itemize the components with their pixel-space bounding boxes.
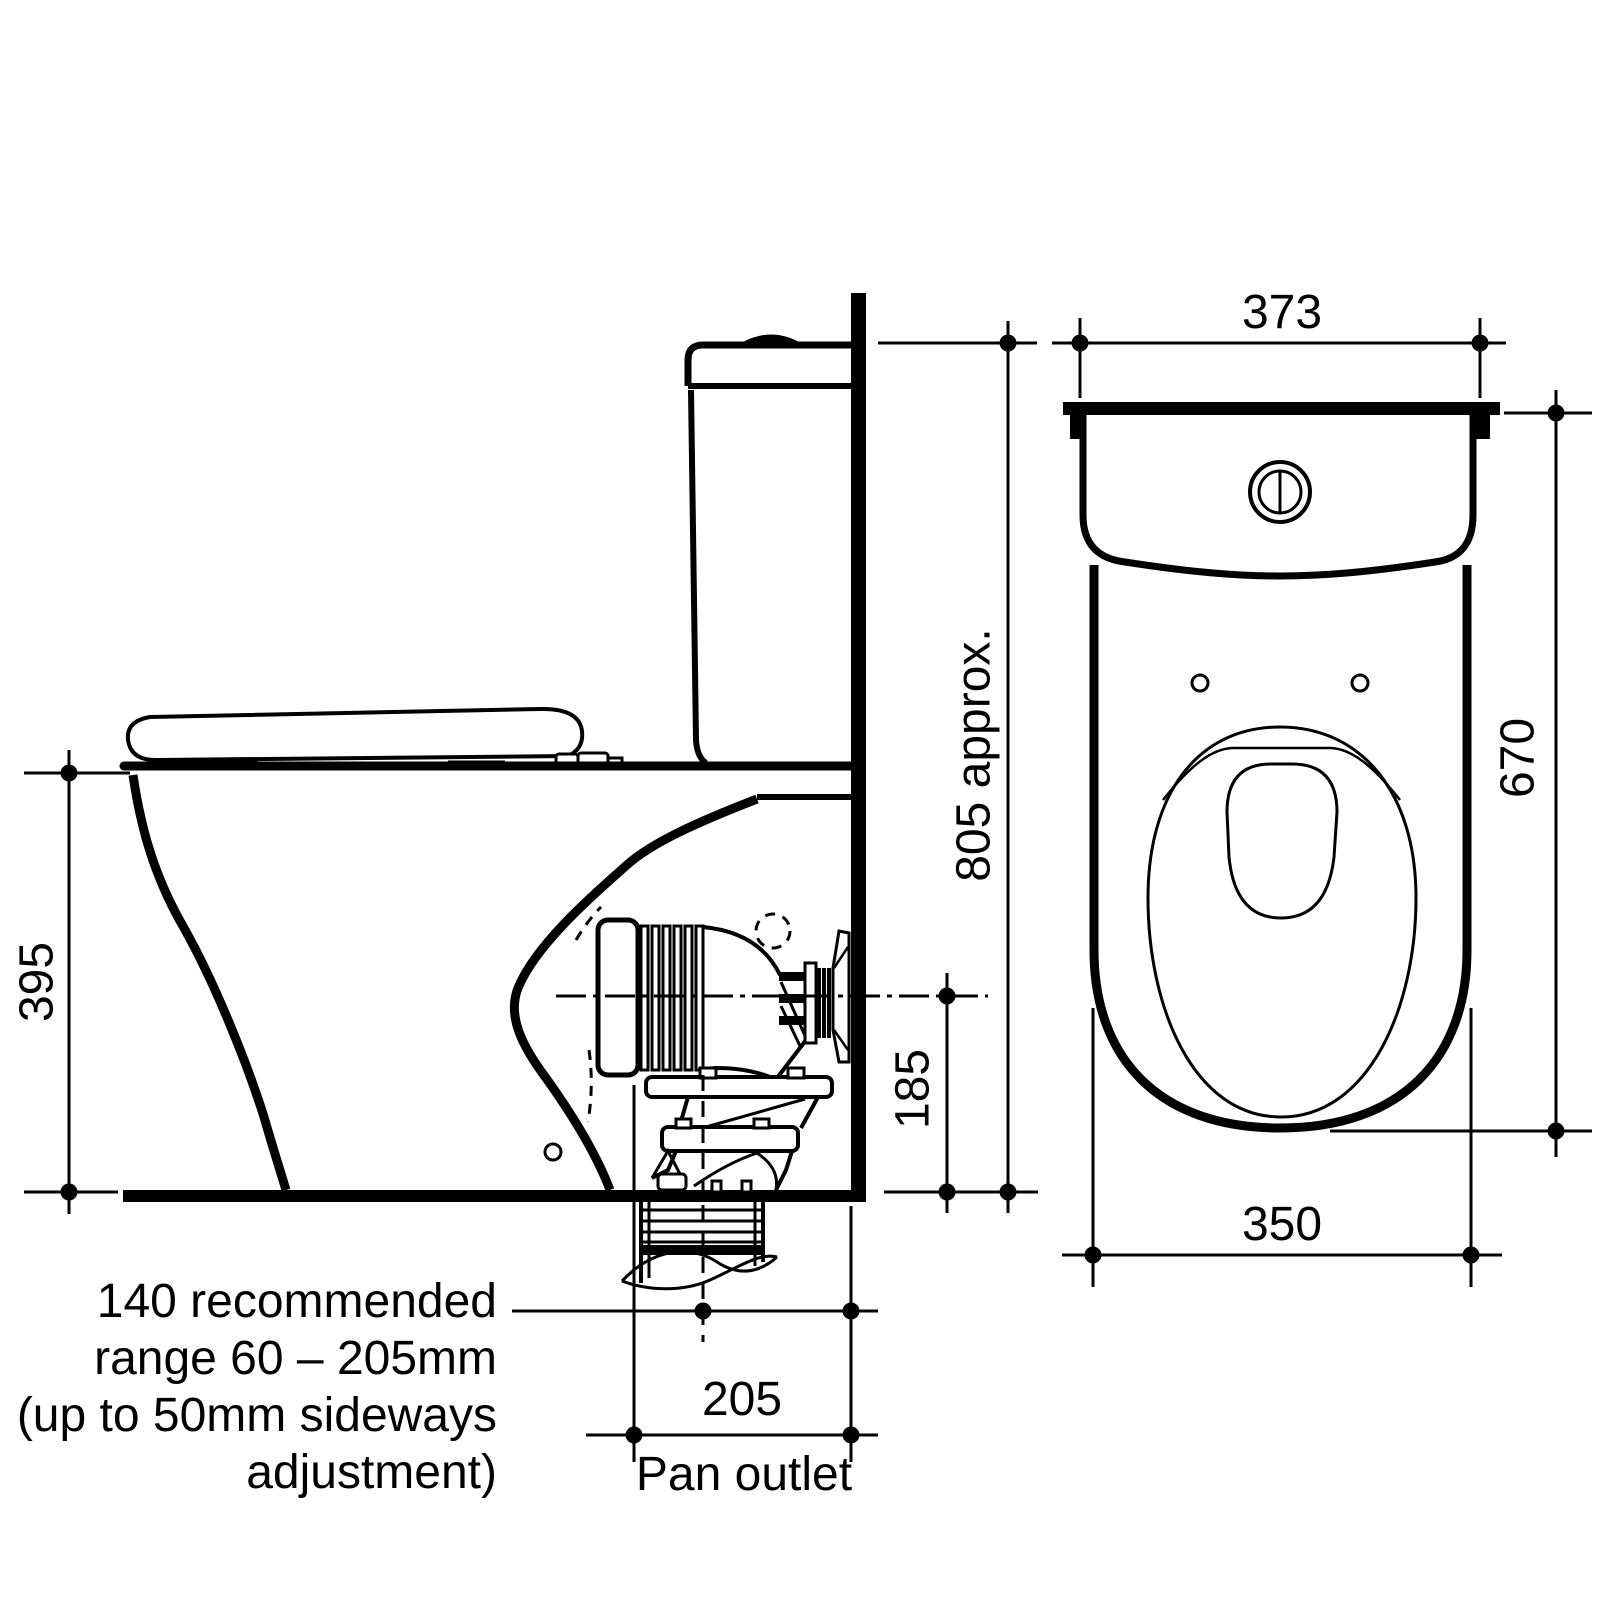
cistern-side: [688, 335, 853, 764]
dim-label-670: 670: [1492, 718, 1545, 798]
connector-spigot-threads: [779, 972, 807, 1025]
dim-width-top: 373: [1052, 286, 1506, 398]
cistern-front: [1063, 402, 1500, 576]
cistern-body-front: [1083, 414, 1473, 576]
dim-label-373: 373: [1242, 286, 1322, 339]
dual-flush-button: [1250, 462, 1310, 522]
outlet-plumbing: [598, 914, 849, 1192]
dim-label-350: 350: [1242, 1198, 1322, 1251]
cistern-lid-top: [688, 345, 853, 386]
collar-lower-tab-right: [754, 1119, 769, 1128]
flush-button-side: [741, 335, 801, 344]
dim-label-185: 185: [887, 1049, 940, 1129]
wall-fitting-ribs: [819, 968, 829, 1038]
dim-depth: 670: [1330, 390, 1592, 1157]
pan-base-fixing-hole: [545, 1144, 561, 1160]
dim-label-805: 805 approx.: [948, 628, 1001, 882]
dim-rim-height: 395: [11, 750, 130, 1214]
diagram-page: 395 805 approx. 185 373: [0, 0, 1600, 1600]
side-view: [123, 293, 988, 1342]
seat-hinge-hole-left: [1192, 675, 1208, 691]
collar-lower-tab-left: [676, 1119, 691, 1128]
floor-section: [123, 1190, 866, 1202]
cistern-lid-lip-right: [1476, 414, 1490, 439]
cistern-lid-bar: [1063, 402, 1500, 415]
hidden-hinge-pin-circle: [756, 914, 790, 948]
connector-body-top: [703, 927, 780, 975]
dim-label-395: 395: [11, 942, 64, 1022]
pan-outlet-label: Pan outlet: [636, 1448, 852, 1501]
seat-side: [124, 709, 851, 797]
hidden-trap-edge-lower: [588, 1050, 591, 1122]
clamp-collar-lower: [662, 1127, 798, 1151]
dimensions: 395 805 approx. 185 373: [11, 286, 1592, 1501]
seat-outer-outline: [1148, 727, 1416, 1117]
seat-inner-opening: [1227, 764, 1337, 918]
seat-hinge-hole-right: [1352, 675, 1368, 691]
pan-front: [1094, 565, 1467, 1128]
note-line-3: (up to 50mm sideways: [17, 1389, 497, 1442]
wall-section: [851, 293, 866, 1202]
toilet-dimension-drawing: 395 805 approx. 185 373: [0, 0, 1600, 1600]
connector-corrugations: [641, 926, 703, 1070]
note-line-2: range 60 – 205mm: [94, 1332, 497, 1385]
clamp-collar-upper: [646, 1077, 832, 1097]
note-line-4: adjustment): [246, 1446, 497, 1499]
below-floor-outlet-pipe: [622, 1202, 777, 1289]
locking-ring: [805, 963, 816, 1043]
dim-width-base: 350: [1062, 1008, 1502, 1287]
note-line-1: 140 recommended: [97, 1275, 497, 1328]
mid-body-right: [801, 1097, 818, 1128]
collar-upper-tab-right: [788, 1068, 804, 1078]
dim-outlet-centre-height: 185: [884, 973, 1038, 1213]
outlet-horn: [652, 1151, 792, 1192]
pan-front-profile: [133, 775, 286, 1190]
elbow-diagonal-2: [781, 1006, 800, 1046]
dim-label-205: 205: [702, 1373, 782, 1426]
seat-lid-profile: [128, 709, 582, 760]
cistern-front-face: [691, 390, 706, 763]
front-view: [1063, 402, 1500, 1128]
